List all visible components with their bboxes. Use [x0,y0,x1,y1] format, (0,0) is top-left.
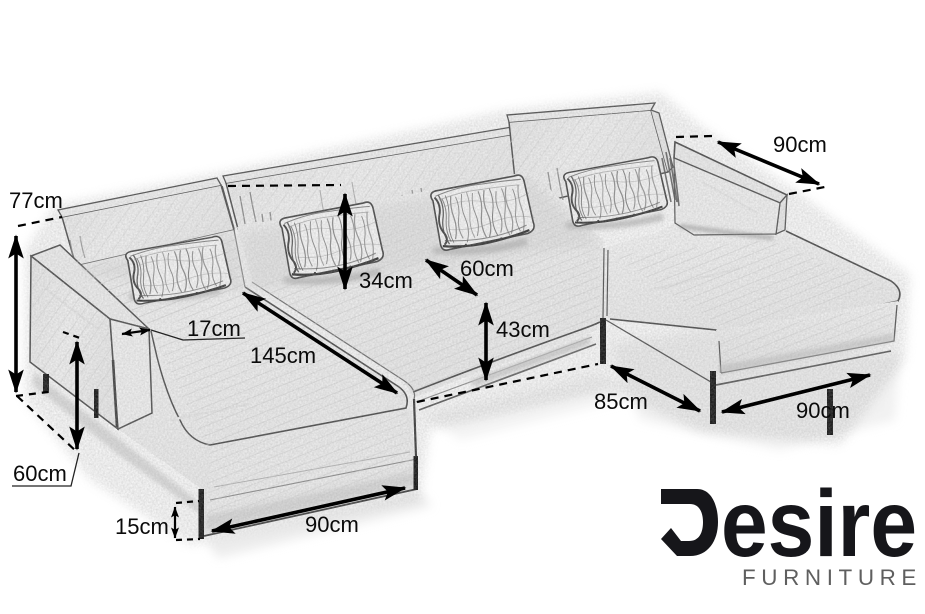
svg-text:60cm: 60cm [13,461,67,486]
svg-text:esire: esire [721,471,917,577]
svg-text:60cm: 60cm [460,256,514,281]
svg-text:145cm: 145cm [250,343,316,368]
svg-text:34cm: 34cm [359,268,413,293]
svg-text:90cm: 90cm [773,132,827,157]
svg-text:85cm: 85cm [594,389,648,414]
svg-text:43cm: 43cm [496,317,550,342]
svg-text:90cm: 90cm [796,398,850,423]
svg-text:90cm: 90cm [305,512,359,537]
svg-text:FURNITURE: FURNITURE [742,565,922,590]
svg-text:15cm: 15cm [115,514,169,539]
svg-text:17cm: 17cm [187,316,241,341]
svg-text:77cm: 77cm [9,188,63,213]
